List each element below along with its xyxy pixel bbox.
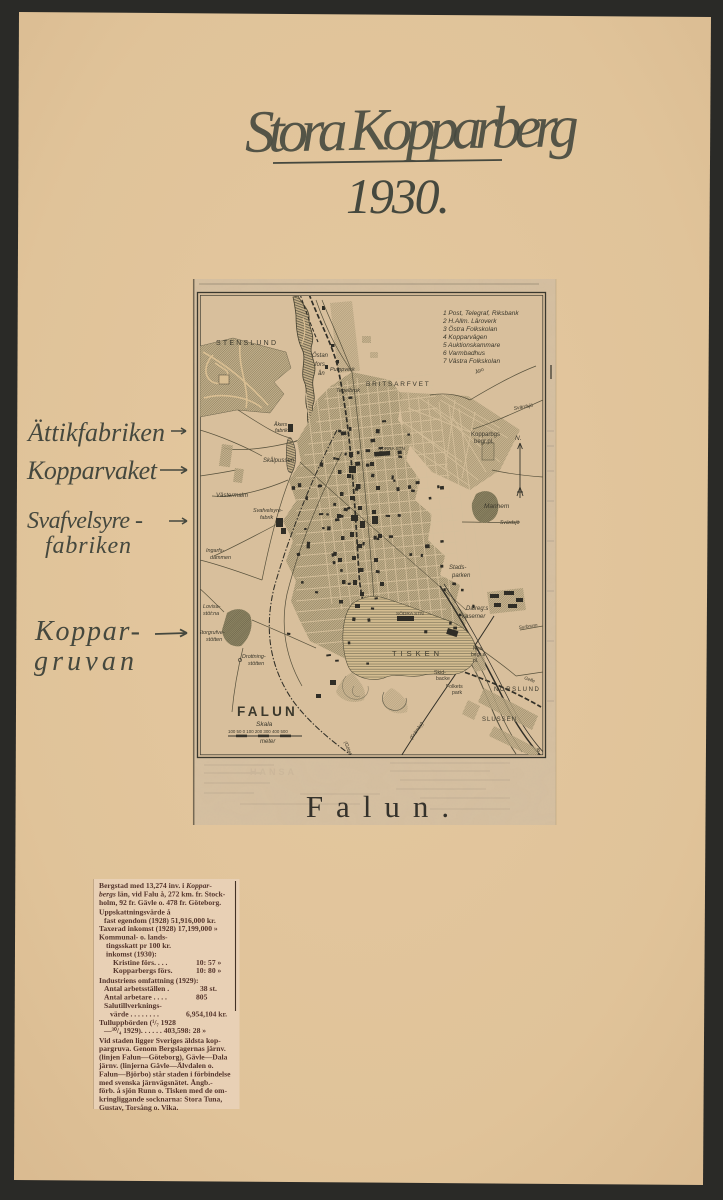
svg-text:Svafvelsyre-: Svafvelsyre- [253, 508, 283, 514]
svg-text:Kopparvaket: Kopparvaket [26, 456, 158, 485]
svg-text:Lovisa-: Lovisa- [203, 604, 221, 610]
svg-text:Tegelbruk: Tegelbruk [336, 388, 360, 394]
svg-text:Manhem: Manhem [484, 503, 510, 510]
svg-text:Stads-: Stads- [449, 565, 466, 571]
svg-text:N.: N. [515, 435, 522, 442]
svg-text:fabrik: fabrik [275, 428, 288, 434]
svg-text:2 H.Allm. Läroverk: 2 H.Allm. Läroverk [442, 318, 497, 325]
svg-text:1930.: 1930. [346, 168, 450, 224]
svg-text:805: 805 [196, 993, 208, 1002]
svg-text:stöt:na: stöt:na [203, 611, 219, 617]
svg-text:Svafvelsyre -: Svafvelsyre - [27, 508, 143, 534]
svg-text:stötten: stötten [248, 661, 264, 667]
svg-text:parken: parken [451, 573, 471, 579]
svg-text:Stora Kopparberg: Stora Kopparberg [244, 93, 579, 165]
svg-text:Gustav, Torsång o. Vika.: Gustav, Torsång o. Vika. [99, 1103, 178, 1112]
svg-text:Västermalm: Västermalm [216, 493, 248, 499]
svg-text:NORSLUND: NORSLUND [494, 687, 540, 693]
svg-text:meter: meter [260, 739, 276, 745]
svg-text:Skala: Skala [256, 721, 273, 728]
svg-text:10: 80 »: 10: 80 » [196, 966, 222, 975]
svg-text:Dalreg:s: Dalreg:s [466, 606, 488, 612]
svg-text:backe: backe [436, 676, 450, 682]
svg-text:1 Post, Telegraf, Riksbank: 1 Post, Telegraf, Riksbank [443, 310, 519, 317]
svg-text:kaserner: kaserner [462, 614, 486, 620]
svg-text:Pumpverk: Pumpverk [330, 367, 355, 373]
svg-text:7 Västra Folkskolan: 7 Västra Folkskolan [443, 358, 500, 365]
svg-text:5 Auktionskammare: 5 Auktionskammare [443, 342, 501, 349]
svg-text:SLUSSEN: SLUSSEN [482, 717, 517, 723]
svg-text:fabriken: fabriken [45, 533, 131, 559]
svg-text:6,954,104 kr.: 6,954,104 kr. [186, 1009, 227, 1018]
svg-text:Svärdsjö: Svärdsjö [500, 520, 520, 526]
svg-text:—³⁰/₄ 1929). . . . . . 403: —³⁰/₄ 1929). . . . . . 403,598: 28 » [103, 1026, 206, 1035]
svg-text:park: park [452, 690, 462, 696]
svg-text:Ingarfs-: Ingarfs- [206, 548, 224, 554]
svg-text:pl.: pl. [473, 658, 478, 664]
svg-text:4 Kopparvägen: 4 Kopparvägen [443, 334, 487, 341]
svg-text:dammen: dammen [210, 555, 231, 561]
svg-text:SÖDRA STN: SÖDRA STN [396, 610, 424, 617]
svg-text:8: 8 [537, 748, 540, 754]
svg-text:begr.pl.: begr.pl. [474, 439, 494, 445]
svg-text:100 50 0 100 200 300 400 500: 100 50 0 100 200 300 400 500 [228, 729, 288, 734]
svg-text:Kopparbgs: Kopparbgs [471, 432, 500, 438]
svg-text:Östan: Östan [312, 352, 329, 359]
svg-text:fors: fors [315, 362, 325, 368]
svg-text:Åkers: Åkers [273, 421, 288, 428]
svg-text:3 Östra Folkskolan: 3 Östra Folkskolan [443, 325, 498, 333]
svg-text:TISKEN: TISKEN [392, 649, 443, 658]
svg-text:6 Varmbadhus: 6 Varmbadhus [443, 350, 486, 357]
svg-text:FALUN: FALUN [237, 704, 298, 719]
svg-text:BRITSARFVET: BRITSARFVET [366, 381, 431, 388]
svg-text:Skålpussen: Skålpussen [263, 457, 295, 464]
svg-text:ån: ån [318, 370, 325, 377]
svg-text:Koppar-: Koppar- [34, 616, 140, 647]
svg-text:holm, 92 fr. Gävle o. 478: holm, 92 fr. Gävle o. 478 fr. Göteborg. [99, 898, 221, 907]
svg-text:Ättikfabriken: Ättikfabriken [26, 418, 165, 447]
svg-text:Storgrufve-: Storgrufve- [198, 630, 225, 636]
svg-text:stötten: stötten [206, 637, 222, 643]
svg-text:Drottning-: Drottning- [242, 654, 266, 660]
svg-text:STENSLUND: STENSLUND [216, 340, 278, 347]
svg-text:fabrik: fabrik [260, 515, 273, 521]
svg-text:Kopparbergs förs.: Kopparbergs förs. [113, 966, 173, 975]
svg-text:Falun.: Falun. [306, 789, 462, 824]
